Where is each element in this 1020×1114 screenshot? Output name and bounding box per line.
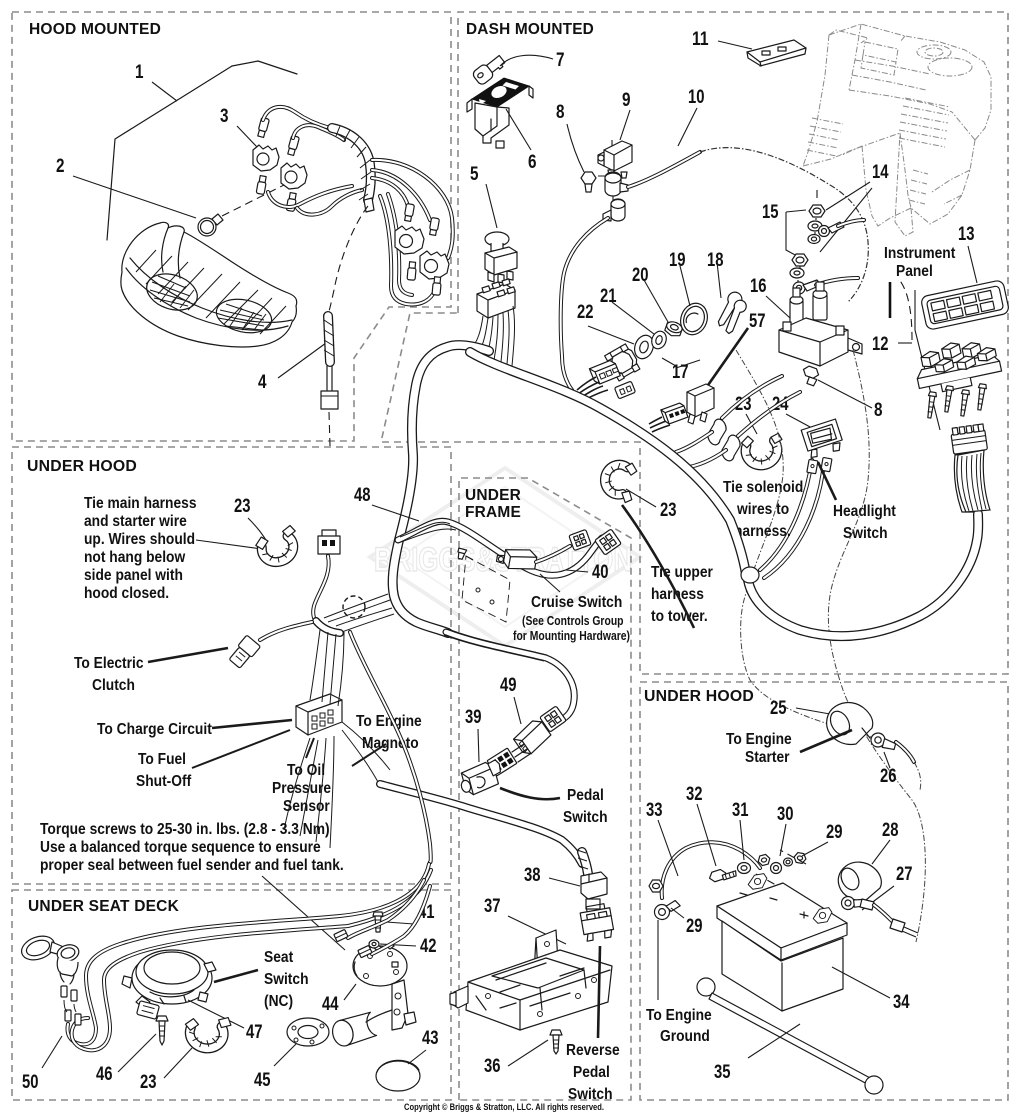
svg-text:UNDER SEAT DECK: UNDER SEAT DECK [28,898,179,915]
svg-text:8: 8 [874,400,883,421]
svg-text:9: 9 [622,90,631,111]
svg-text:UNDER HOOD: UNDER HOOD [644,688,754,705]
svg-text:for Mounting Hardware): for Mounting Hardware) [513,628,630,643]
svg-text:Pedal: Pedal [567,787,604,804]
svg-text:Copyright © Briggs & Stratton,: Copyright © Briggs & Stratton, LLC. All … [404,1102,604,1112]
svg-text:not hang below: not hang below [84,549,186,566]
svg-text:32: 32 [686,784,703,805]
svg-text:39: 39 [465,707,482,728]
svg-text:13: 13 [958,224,975,245]
svg-text:28: 28 [882,820,899,841]
svg-text:34: 34 [893,992,910,1013]
svg-text:7: 7 [556,50,565,71]
svg-text:27: 27 [896,864,913,885]
svg-text:10: 10 [688,87,705,108]
svg-text:30: 30 [777,804,794,825]
svg-text:42: 42 [420,936,437,957]
svg-text:to tower.: to tower. [651,608,708,625]
svg-text:40: 40 [592,562,609,583]
svg-text:harness.: harness. [734,523,791,540]
svg-text:To Engine: To Engine [726,731,792,748]
svg-text:44: 44 [322,994,339,1015]
svg-text:29: 29 [686,916,703,937]
svg-text:Magneto: Magneto [362,735,419,752]
svg-text:23: 23 [234,496,251,517]
svg-text:6: 6 [528,152,537,173]
svg-text:Pedal: Pedal [573,1064,610,1081]
svg-text:47: 47 [246,1022,263,1043]
svg-text:UNDER: UNDER [465,487,521,504]
svg-text:To Oil: To Oil [287,762,325,779]
svg-text:15: 15 [762,202,779,223]
svg-text:hood closed.: hood closed. [84,585,169,602]
svg-text:Shut-Off: Shut-Off [136,773,192,790]
svg-text:and starter wire: and starter wire [84,513,187,530]
svg-text:Sensor: Sensor [283,798,330,815]
svg-text:25: 25 [770,698,787,719]
svg-text:22: 22 [577,302,594,323]
svg-text:23: 23 [140,1072,157,1093]
svg-text:Panel: Panel [896,263,933,280]
svg-text:Ground: Ground [660,1028,710,1045]
svg-text:DASH MOUNTED: DASH MOUNTED [466,21,594,38]
svg-text:57: 57 [749,311,766,332]
svg-text:Switch: Switch [264,971,309,988]
svg-text:Use a balanced torque sequence: Use a balanced torque sequence to ensure [40,839,321,856]
svg-text:50: 50 [22,1072,39,1093]
svg-text:48: 48 [354,485,371,506]
svg-text:2: 2 [56,156,65,177]
svg-text:31: 31 [732,800,749,821]
svg-text:8: 8 [556,102,565,123]
svg-text:33: 33 [646,800,663,821]
svg-text:37: 37 [484,896,501,917]
svg-text:1: 1 [135,62,144,83]
svg-text:49: 49 [500,675,517,696]
svg-text:Cruise Switch: Cruise Switch [531,594,622,611]
svg-text:To Charge Circuit: To Charge Circuit [97,721,212,738]
svg-text:29: 29 [826,822,843,843]
svg-text:19: 19 [669,250,686,271]
svg-text:45: 45 [254,1070,271,1091]
svg-text:HOOD MOUNTED: HOOD MOUNTED [29,21,161,38]
svg-text:Torque screws to 25-30 in. lbs: Torque screws to 25-30 in. lbs. (2.8 - 3… [40,821,330,838]
svg-text:(See Controls Group: (See Controls Group [522,613,624,628]
svg-text:proper seal between fuel sende: proper seal between fuel sender and fuel… [40,857,344,874]
svg-text:Instrument: Instrument [884,245,956,262]
svg-text:5: 5 [470,164,479,185]
svg-text:4: 4 [258,372,267,393]
svg-text:Clutch: Clutch [92,677,135,694]
svg-text:wires to: wires to [736,501,789,518]
svg-text:To Electric: To Electric [74,655,144,672]
svg-text:Reverse: Reverse [566,1042,620,1059]
svg-text:FRAME: FRAME [465,504,521,521]
svg-text:Pressure: Pressure [272,780,331,797]
svg-text:26: 26 [880,766,897,787]
svg-text:35: 35 [714,1062,731,1083]
svg-text:Seat: Seat [264,949,294,966]
svg-text:46: 46 [96,1064,113,1085]
svg-text:Headlight: Headlight [833,503,896,520]
svg-text:up. Wires should: up. Wires should [84,531,195,548]
svg-text:Tie main harness: Tie main harness [84,495,197,512]
svg-text:14: 14 [872,162,889,183]
svg-text:43: 43 [422,1028,439,1049]
svg-text:(NC): (NC) [264,993,293,1010]
svg-text:Tie solenoid: Tie solenoid [723,479,803,496]
svg-text:To Engine: To Engine [646,1007,712,1024]
svg-text:11: 11 [692,29,709,50]
svg-text:36: 36 [484,1056,501,1077]
svg-text:18: 18 [707,250,724,271]
svg-text:Switch: Switch [843,525,888,542]
svg-text:UNDER HOOD: UNDER HOOD [27,458,137,475]
svg-text:12: 12 [872,334,889,355]
svg-text:Starter: Starter [745,749,790,766]
svg-text:To Fuel: To Fuel [138,751,186,768]
svg-text:16: 16 [750,276,767,297]
svg-text:38: 38 [524,865,541,886]
svg-text:23: 23 [660,500,677,521]
svg-text:Switch: Switch [568,1086,613,1103]
svg-text:side panel with: side panel with [84,567,183,584]
svg-text:Switch: Switch [563,809,608,826]
svg-text:3: 3 [220,106,229,127]
